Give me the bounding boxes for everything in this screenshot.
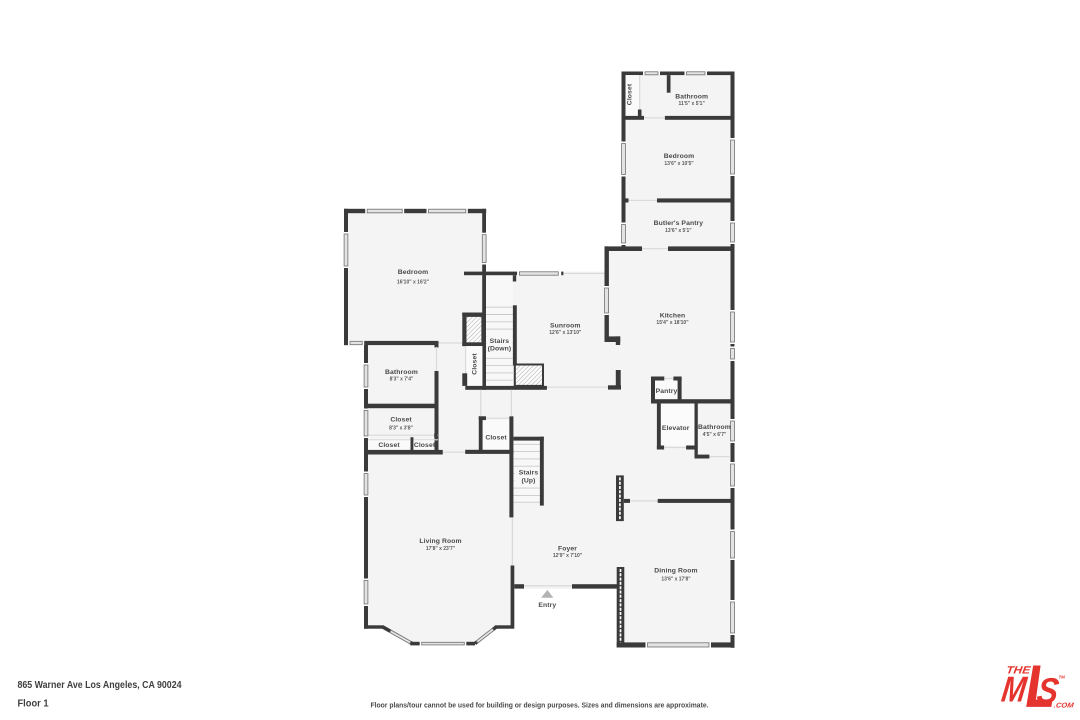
svg-text:Dining Room: Dining Room xyxy=(654,567,697,574)
svg-text:Sunroom: Sunroom xyxy=(550,322,581,329)
svg-text:Kitchen: Kitchen xyxy=(660,312,686,319)
svg-text:Elevator: Elevator xyxy=(662,425,690,432)
svg-text:8'3" x 3'8": 8'3" x 3'8" xyxy=(389,426,413,432)
svg-text:Closet: Closet xyxy=(627,83,634,105)
svg-text:Bathroom: Bathroom xyxy=(675,93,708,100)
svg-text:Butler's Pantry: Butler's Pantry xyxy=(654,220,704,227)
svg-text:Closet: Closet xyxy=(485,435,507,442)
svg-text:Living Room: Living Room xyxy=(419,538,461,545)
svg-text:Bathroom: Bathroom xyxy=(385,369,418,376)
svg-text:Closet: Closet xyxy=(414,442,436,449)
svg-text:17'8" x 23'7": 17'8" x 23'7" xyxy=(426,546,456,552)
svg-text:13'6" x 10'5": 13'6" x 10'5" xyxy=(664,161,694,167)
svg-text:Foyer: Foyer xyxy=(558,546,577,553)
svg-text:12'6" x 13'10": 12'6" x 13'10" xyxy=(549,330,582,336)
svg-text:Closet: Closet xyxy=(378,442,400,449)
svg-text:Stairs: Stairs xyxy=(490,338,510,345)
svg-text:(Down): (Down) xyxy=(488,346,512,353)
svg-text:Pantry: Pantry xyxy=(656,388,678,395)
svg-text:8'3" x 7'4": 8'3" x 7'4" xyxy=(390,377,414,383)
svg-text:Bathroom: Bathroom xyxy=(698,424,731,431)
svg-text:Bedroom: Bedroom xyxy=(664,153,695,160)
svg-text:13'6" x 17'8": 13'6" x 17'8" xyxy=(661,576,691,582)
svg-text:.COM: .COM xyxy=(1053,703,1074,710)
svg-text:16'10" x 16'2": 16'10" x 16'2" xyxy=(397,280,430,286)
svg-text:Closet: Closet xyxy=(472,353,479,375)
svg-text:13'6" x 5'1": 13'6" x 5'1" xyxy=(665,228,692,234)
svg-text:Stairs: Stairs xyxy=(519,470,539,477)
svg-text:12'9" x 7'10": 12'9" x 7'10" xyxy=(553,553,583,559)
svg-text:15'4" x 18'10": 15'4" x 18'10" xyxy=(656,320,689,326)
svg-text:Closet: Closet xyxy=(390,417,412,424)
svg-text:865 Warner Ave Los Angeles, CA: 865 Warner Ave Los Angeles, CA 90024 xyxy=(18,679,182,691)
svg-text:4'5" x 6'7": 4'5" x 6'7" xyxy=(703,432,727,438)
svg-text:Floor 1: Floor 1 xyxy=(18,697,49,709)
svg-text:TM: TM xyxy=(1058,674,1065,679)
svg-text:Entry: Entry xyxy=(538,602,556,609)
svg-text:(Up): (Up) xyxy=(522,477,536,484)
svg-text:Floor plans/tour cannot be use: Floor plans/tour cannot be used for buil… xyxy=(371,703,709,710)
svg-text:Bedroom: Bedroom xyxy=(398,269,429,276)
svg-text:11'5" x 5'1": 11'5" x 5'1" xyxy=(679,101,706,107)
